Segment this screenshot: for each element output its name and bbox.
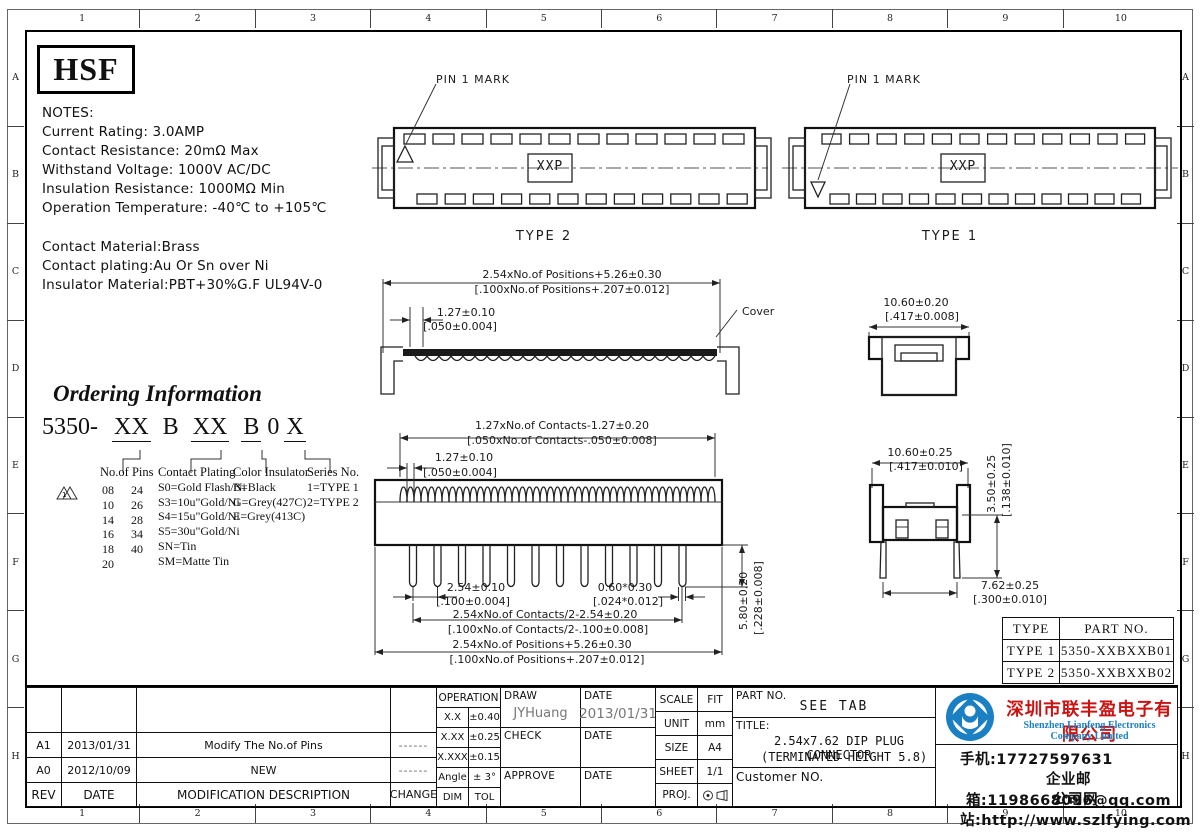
company-phone: 手机:17727597631 — [960, 748, 1113, 769]
proj-symbol-cell — [697, 783, 733, 807]
plating-line: SN=Tin — [158, 539, 246, 554]
unit-value: mm — [697, 711, 733, 736]
company-logo-icon — [944, 691, 996, 743]
material-block: Contact Material:Brass Contact plating:A… — [42, 238, 323, 295]
rev-empty-cell — [25, 687, 62, 733]
draw-label: DRAW — [504, 690, 537, 702]
cover-pitch-dim-mm: 1.27±0.10 — [437, 306, 495, 319]
mv-pinw-dim-mm: 0.60*0.30 — [598, 581, 652, 594]
pins-value: 28 — [131, 513, 143, 528]
pins-col1: 08 10 14 16 18 20 — [102, 483, 114, 572]
sv-width-dim-mm: 10.60±0.25 — [887, 446, 952, 459]
material-line: Contact plating:Au Or Sn over Ni — [42, 257, 323, 276]
rev-a0-date: 2012/10/09 — [61, 757, 137, 783]
title-cell: TITLE: 2.54x7.62 DIP PLUG CONNECTOR (TER… — [732, 717, 936, 768]
type1-caption: TYPE 1 — [922, 230, 978, 243]
check-date-cell: DATE — [580, 727, 656, 768]
pn-seg-insulator: B — [241, 414, 261, 442]
title-block: A1 2013/01/31 Modify The No.of Pins ----… — [25, 685, 1178, 805]
material-line: Insulator Material:PBT+30%G.F UL94V-0 — [42, 276, 323, 295]
part-table-header-type: TYPE — [1002, 617, 1060, 640]
pins-col2: 24 26 28 34 40 — [131, 483, 143, 557]
approve-date-cell: DATE — [580, 767, 656, 807]
cover-side-dim-in: [.417±0.008] — [885, 310, 959, 323]
insulator-line: G=Grey(427C) — [233, 495, 309, 510]
pins-value: 08 — [102, 483, 114, 498]
revision-marker-number: 1 — [62, 491, 66, 499]
pins-value: 14 — [102, 513, 114, 528]
scale-value: FIT — [697, 687, 733, 712]
mv-row-dim-mm: 2.54xNo.of Contacts/2-2.54±0.20 — [453, 608, 638, 621]
type2-top-view — [370, 75, 770, 235]
mv-pitch-dim-mm: 1.27±0.10 — [435, 451, 493, 464]
pn-seg-series: X — [284, 414, 305, 442]
ruler-top: 12345678910 — [25, 9, 1178, 28]
pins-value: 24 — [131, 483, 143, 498]
tol-dim-label: DIM — [436, 787, 469, 807]
sv-span-dim-in: [.300±0.010] — [973, 593, 1047, 606]
note-line: Contact Resistance: 20mΩ Max — [42, 142, 327, 161]
size-label: SIZE — [655, 735, 698, 760]
insulator-line: B=Black — [233, 480, 309, 495]
check-cell: CHECK — [500, 727, 581, 768]
rev-a1-rev: A1 — [25, 732, 62, 758]
pn-seg-plating: XX — [191, 414, 230, 442]
approve-label: APPROVE — [504, 770, 555, 782]
tol-tol-label: TOL — [468, 787, 501, 807]
mv-row-dim-in: [.100xNo.of Contacts/2-.100±0.008] — [448, 623, 648, 636]
series-line: 1=TYPE 1 — [307, 480, 359, 495]
plating-line: SM=Matte Tin — [158, 554, 246, 569]
company-header-cell: 深圳市联丰盈电子有限公司 Shenzhen Lianfeng Electroni… — [935, 687, 1178, 745]
partno-cell: PART NO. SEE TAB — [732, 687, 936, 718]
ordering-col-pins: No.of Pins — [100, 465, 153, 480]
check-label: CHECK — [504, 730, 542, 742]
part-table-type2-pn: 5350-XXBXXB02 — [1059, 661, 1174, 684]
approve-cell: APPROVE — [500, 767, 581, 807]
approve-date-label: DATE — [584, 770, 613, 782]
tol-xxx-label: X.XX — [436, 727, 469, 748]
plating-line: S5=30u"Gold/Ni — [158, 524, 246, 539]
scale-label: SCALE — [655, 687, 698, 712]
rev-a0-rev: A0 — [25, 757, 62, 783]
note-line: Current Rating: 3.0AMP — [42, 123, 327, 142]
pins-header: No.of Pins — [100, 465, 153, 480]
cover-width-dim-mm: 2.54xNo.of Positions+5.26±0.30 — [482, 268, 661, 281]
tol-xxxx-value: ±0.15 — [468, 747, 501, 768]
tol-xxxx-label: X.XXX — [436, 747, 469, 768]
rev-header-desc: MODIFICATION DESCRIPTION — [136, 782, 391, 807]
pins-value: 10 — [102, 498, 114, 513]
tol-angle-label: Angle — [436, 767, 469, 788]
draw-name: JYHuang — [513, 706, 567, 721]
sv-height-dim-in: [.138±0.010] — [1000, 443, 1013, 517]
check-date-label: DATE — [584, 730, 613, 742]
sv-height-dim-mm: 3.50±0.25 — [985, 455, 998, 513]
cover-pitch-dim-in: [.050±0.004] — [423, 320, 497, 333]
hsf-logo-text: HSF — [53, 51, 118, 88]
ordering-title: Ordering Information — [53, 381, 262, 407]
tol-xxx-value: ±0.25 — [468, 727, 501, 748]
cover-width-dim-in: [.100xNo.of Positions+.207±0.012] — [475, 283, 670, 296]
series-line: 2=TYPE 2 — [307, 495, 359, 510]
draw-date-cell: DATE 2013/01/31 — [580, 687, 656, 728]
sheet-value: 1/1 — [697, 759, 733, 784]
mv-contacts-dim-in: [.050xNo.of Contacts-.050±0.008] — [467, 434, 657, 447]
rev-a1-desc: Modify The No.of Pins — [136, 732, 391, 758]
rev-empty-cell — [136, 687, 391, 733]
insulator-line: E=Grey(413C) — [233, 509, 309, 524]
mv-height-dim-mm: 5.80±0.20 — [737, 572, 750, 630]
size-value: A4 — [697, 735, 733, 760]
draw-date-value: 2013/01/31 — [579, 706, 657, 722]
part-number-pattern: 5350-XXBXXB0X — [42, 414, 306, 441]
pn-seg-zero: 0 — [267, 414, 279, 440]
rev-a1-date: 2013/01/31 — [61, 732, 137, 758]
tol-xx-label: X.X — [436, 707, 469, 728]
proj-label: PROJ. — [655, 783, 698, 807]
pins-value: 26 — [131, 498, 143, 513]
rev-header-change: CHANGE — [390, 782, 437, 807]
tol-xx-value: ±0.40 — [468, 707, 501, 728]
cover-side-dim-mm: 10.60±0.20 — [883, 296, 948, 309]
sheet-label: SHEET — [655, 759, 698, 784]
partno-label: PART NO. — [736, 690, 787, 702]
part-table-type1-pn: 5350-XXBXXB01 — [1059, 639, 1174, 662]
pin1-mark-label-type2: PIN 1 MARK — [436, 73, 510, 86]
type1-xxp-label: XXP — [950, 160, 976, 173]
customer-cell: Customer NO. — [732, 767, 936, 807]
company-website: 公司网站:http://www.szlfying.com — [960, 788, 1191, 830]
hsf-logo: HSF — [37, 45, 135, 94]
draw-date-label: DATE — [584, 690, 613, 702]
type2-caption: TYPE 2 — [516, 230, 572, 243]
part-table-type1: TYPE 1 — [1002, 639, 1060, 662]
operation-header: OPERATION — [436, 687, 501, 708]
mv-pinpitch-dim-mm: 2.54±0.10 — [447, 581, 505, 594]
ordering-col-insulator: Color Insulator B=Black G=Grey(427C) E=G… — [233, 465, 309, 524]
mv-pinpitch-dim-in: [.100±0.004] — [436, 595, 510, 608]
title-label: TITLE: — [736, 720, 770, 732]
company-contact-cell: 手机:17727597631 企业邮箱:1198668096@qq.com 公司… — [935, 744, 1178, 807]
drawing-sheet: 12345678910 12345678910 ABCDEFGH ABCDEFG… — [0, 0, 1200, 832]
type1-top-view — [778, 75, 1182, 235]
type2-xxp-label: XXP — [537, 160, 563, 173]
pin1-mark-label-type1: PIN 1 MARK — [847, 73, 921, 86]
material-line: Contact Material:Brass — [42, 238, 323, 257]
pn-prefix: 5350- — [42, 414, 98, 440]
rev-header-rev: REV — [25, 782, 62, 807]
mv-pitch-dim-in: [.050±0.004] — [423, 466, 497, 479]
ordering-col-series: Series No. 1=TYPE 1 2=TYPE 2 — [307, 465, 359, 509]
rev-empty-cell — [61, 687, 137, 733]
note-line: Insulation Resistance: 1000MΩ Min — [42, 180, 327, 199]
tol-angle-value: ± 3° — [468, 767, 501, 788]
sv-span-dim-mm: 7.62±0.25 — [981, 579, 1039, 592]
pins-value: 20 — [102, 557, 114, 572]
pn-seg-pins: XX — [112, 414, 151, 442]
pins-value: 18 — [102, 542, 114, 557]
series-header: Series No. — [307, 465, 359, 480]
mv-total-dim-in: [.100xNo.of Positions+.207±0.012] — [450, 653, 645, 666]
first-angle-projection-icon — [700, 788, 730, 803]
unit-label: UNIT — [655, 711, 698, 736]
part-number-table: TYPE PART NO. TYPE 1 5350-XXBXXB01 TYPE … — [1002, 617, 1174, 683]
mv-total-dim-mm: 2.54xNo.of Positions+5.26±0.30 — [452, 638, 631, 651]
pins-value: 40 — [131, 542, 143, 557]
mv-pinw-dim-in: [.024*0.012] — [593, 595, 663, 608]
rev-empty-cell — [390, 687, 437, 733]
note-line: Operation Temperature: -40℃ to +105℃ — [42, 199, 327, 218]
sv-width-dim-in: [.417±0.010] — [889, 460, 963, 473]
draw-cell: DRAW JYHuang — [500, 687, 581, 728]
rev-a0-change: ------ — [390, 757, 437, 783]
mv-contacts-dim-mm: 1.27xNo.of Contacts-1.27±0.20 — [475, 419, 649, 432]
insulator-header: Color Insulator — [233, 465, 309, 480]
mv-height-dim-in: [.228±0.008] — [752, 561, 765, 635]
title-line2: (TERMINATED HEIGHT 5.8) — [761, 750, 927, 764]
part-table-type2: TYPE 2 — [1002, 661, 1060, 684]
pins-value: 16 — [102, 527, 114, 542]
company-name-en: Shenzhen Lianfeng Electronics Company Li… — [1002, 720, 1177, 742]
pn-seg-b1: B — [163, 414, 179, 440]
pins-value: 34 — [131, 527, 143, 542]
rev-a0-desc: NEW — [136, 757, 391, 783]
rev-header-date: DATE — [61, 782, 137, 807]
rev-a1-change: ------ — [390, 732, 437, 758]
cover-label: Cover — [742, 305, 774, 318]
part-table-header-partno: PART NO. — [1059, 617, 1174, 640]
customer-label: Customer NO. — [736, 770, 823, 784]
ruler-left: ABCDEFGH — [7, 30, 24, 804]
notes-block: NOTES: Current Rating: 3.0AMP Contact Re… — [42, 104, 327, 218]
notes-heading: NOTES: — [42, 104, 327, 123]
note-line: Withstand Voltage: 1000V AC/DC — [42, 161, 327, 180]
partno-value: SEE TAB — [800, 699, 869, 714]
revision-triangle-marker: 1 — [56, 485, 78, 501]
